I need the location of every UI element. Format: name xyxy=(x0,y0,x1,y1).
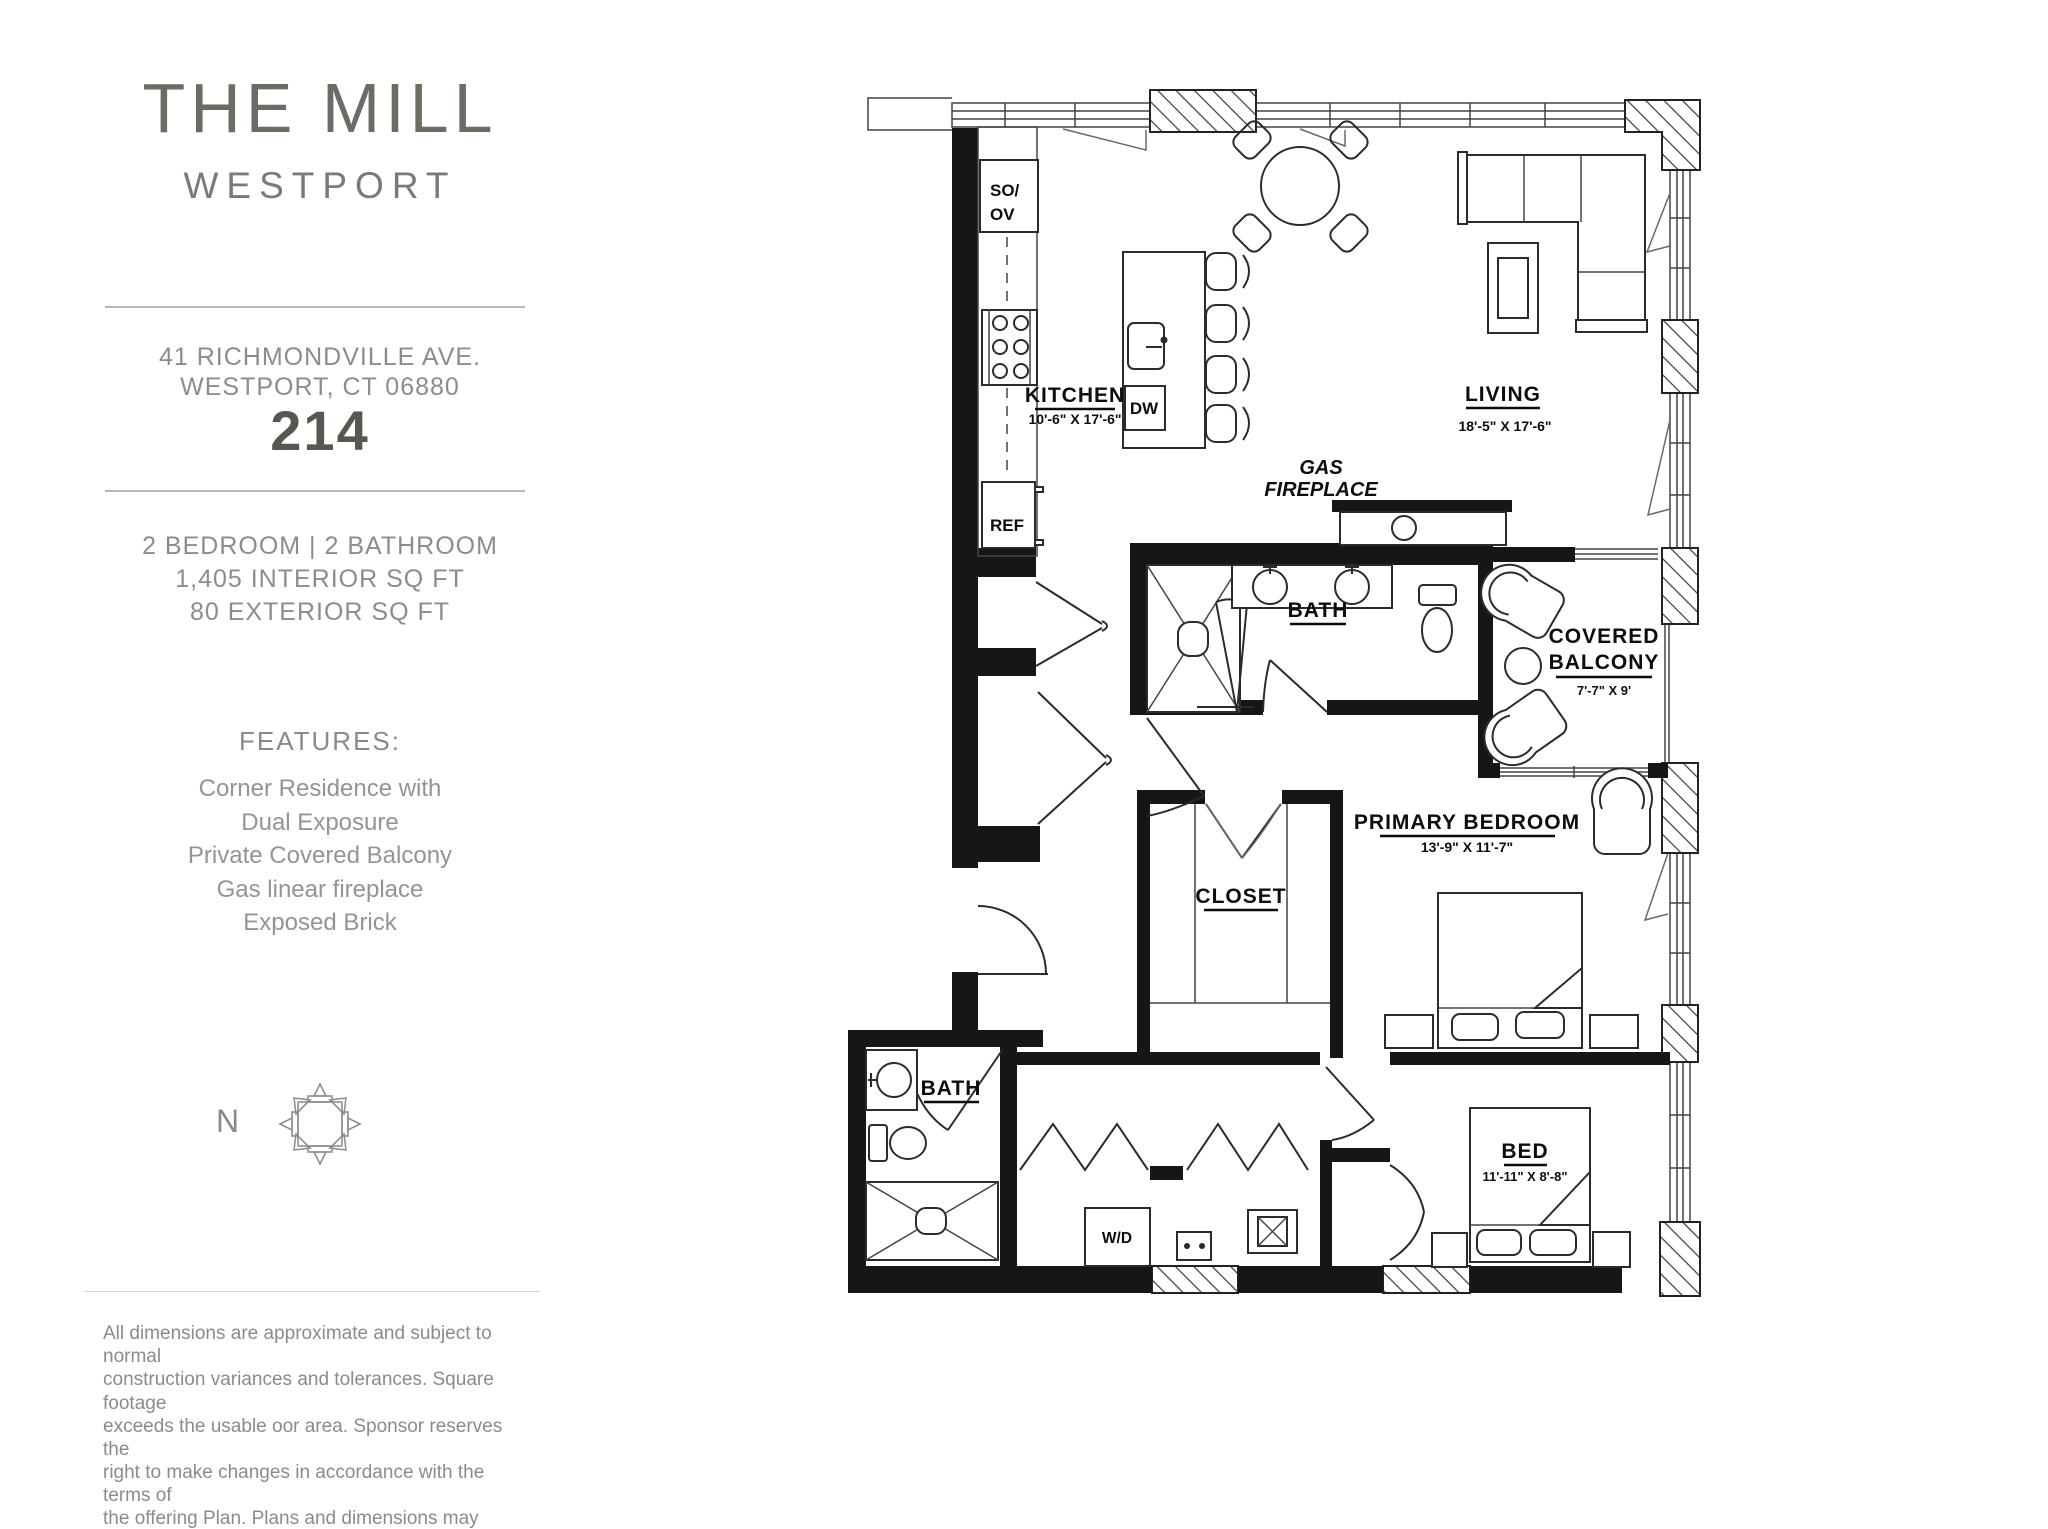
fireplace-label-line2: FIREPLACE xyxy=(1264,479,1378,501)
balcony-table xyxy=(1505,648,1541,684)
closet-label: CLOSET xyxy=(1195,885,1286,908)
refrigerator-label: REF xyxy=(990,516,1024,535)
living-room xyxy=(1340,152,1647,545)
nightstand xyxy=(1432,1233,1467,1267)
dining-table xyxy=(1230,118,1371,255)
balcony-dimensions: 7'-7" X 9' xyxy=(1577,683,1631,698)
nightstand xyxy=(1590,1015,1638,1048)
speed-oven-label-line1: SO/ xyxy=(990,181,1020,200)
island-stools xyxy=(1206,253,1249,442)
fireplace-label-line1: GAS xyxy=(1299,457,1343,479)
primary-bath-label: BATH xyxy=(1288,599,1349,622)
kitchen-label: KITCHEN xyxy=(1025,384,1125,407)
bedroom2-label: BED xyxy=(1501,1140,1548,1163)
range xyxy=(982,310,1037,385)
living-dimensions: 18'-5" X 17'-6" xyxy=(1458,418,1551,434)
dishwasher-label: DW xyxy=(1130,399,1159,418)
toilet xyxy=(1419,585,1456,652)
balcony-label-line1: COVERED xyxy=(1549,625,1660,648)
kitchen-dimensions: 10'-6" X 17'-6" xyxy=(1028,411,1121,427)
coffee-table xyxy=(1488,243,1538,333)
bedroom2-dimensions: 11'-11" X 8'-8" xyxy=(1482,1169,1567,1184)
bedroom-chair xyxy=(1592,768,1652,854)
shower xyxy=(866,1182,998,1260)
shaft-box xyxy=(1248,1210,1297,1253)
balcony-label-line2: BALCONY xyxy=(1549,651,1660,674)
washer-dryer-label: W/D xyxy=(1102,1230,1132,1247)
sectional-sofa xyxy=(1458,152,1647,332)
gas-fireplace xyxy=(1340,512,1506,545)
kitchen-island xyxy=(1123,252,1205,448)
primary-bed xyxy=(1438,893,1582,1048)
nightstand xyxy=(1593,1232,1630,1267)
living-label: LIVING xyxy=(1465,383,1541,406)
floor-plan: KITCHEN 10'-6" X 17'-6" LIVING 18'-5" X … xyxy=(0,0,2048,1529)
toilet xyxy=(869,1125,926,1161)
bed2 xyxy=(1470,1108,1590,1262)
vanity-sink xyxy=(866,1050,917,1110)
electrical-box xyxy=(1177,1232,1211,1260)
floorplan-sheet: THE MILL WESTPORT 41 RICHMONDVILLE AVE. … xyxy=(0,0,2048,1529)
primary-bedroom-label: PRIMARY BEDROOM xyxy=(1354,811,1580,834)
primary-bedroom-dimensions: 13'-9" X 11'-7" xyxy=(1421,839,1513,855)
nightstand xyxy=(1385,1015,1433,1048)
refrigerator xyxy=(982,482,1043,548)
bath2-label: BATH xyxy=(921,1077,982,1100)
speed-oven-label-line2: OV xyxy=(990,205,1015,224)
second-bedroom xyxy=(1432,1108,1630,1267)
